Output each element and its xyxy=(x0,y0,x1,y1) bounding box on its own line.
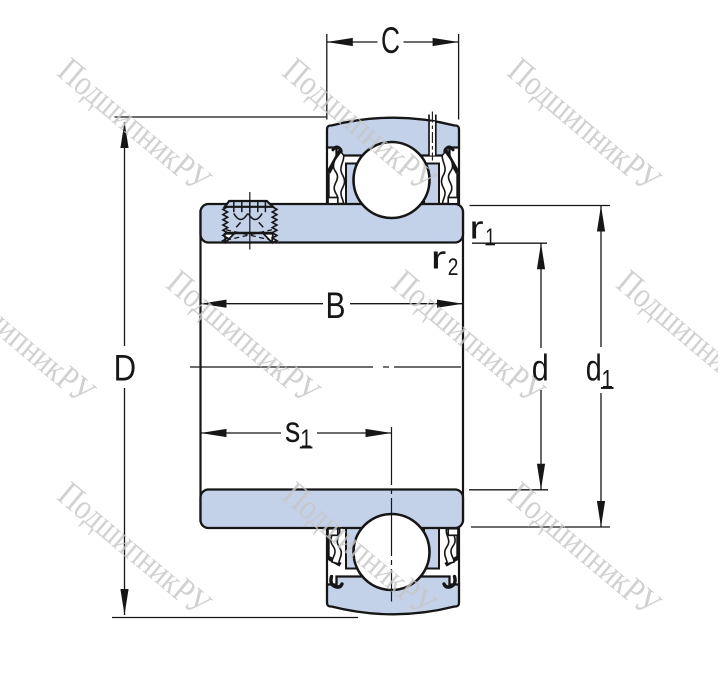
svg-text:D: D xyxy=(114,347,137,388)
svg-text:r: r xyxy=(469,209,484,245)
svg-text:2: 2 xyxy=(448,254,459,281)
svg-text:s: s xyxy=(285,409,300,450)
svg-text:1: 1 xyxy=(601,364,613,394)
svg-text:1: 1 xyxy=(485,224,495,251)
svg-text:C: C xyxy=(381,20,400,61)
svg-text:1: 1 xyxy=(300,424,312,454)
svg-text:d: d xyxy=(586,348,602,389)
svg-text:r: r xyxy=(431,239,447,275)
svg-text:B: B xyxy=(326,285,346,326)
